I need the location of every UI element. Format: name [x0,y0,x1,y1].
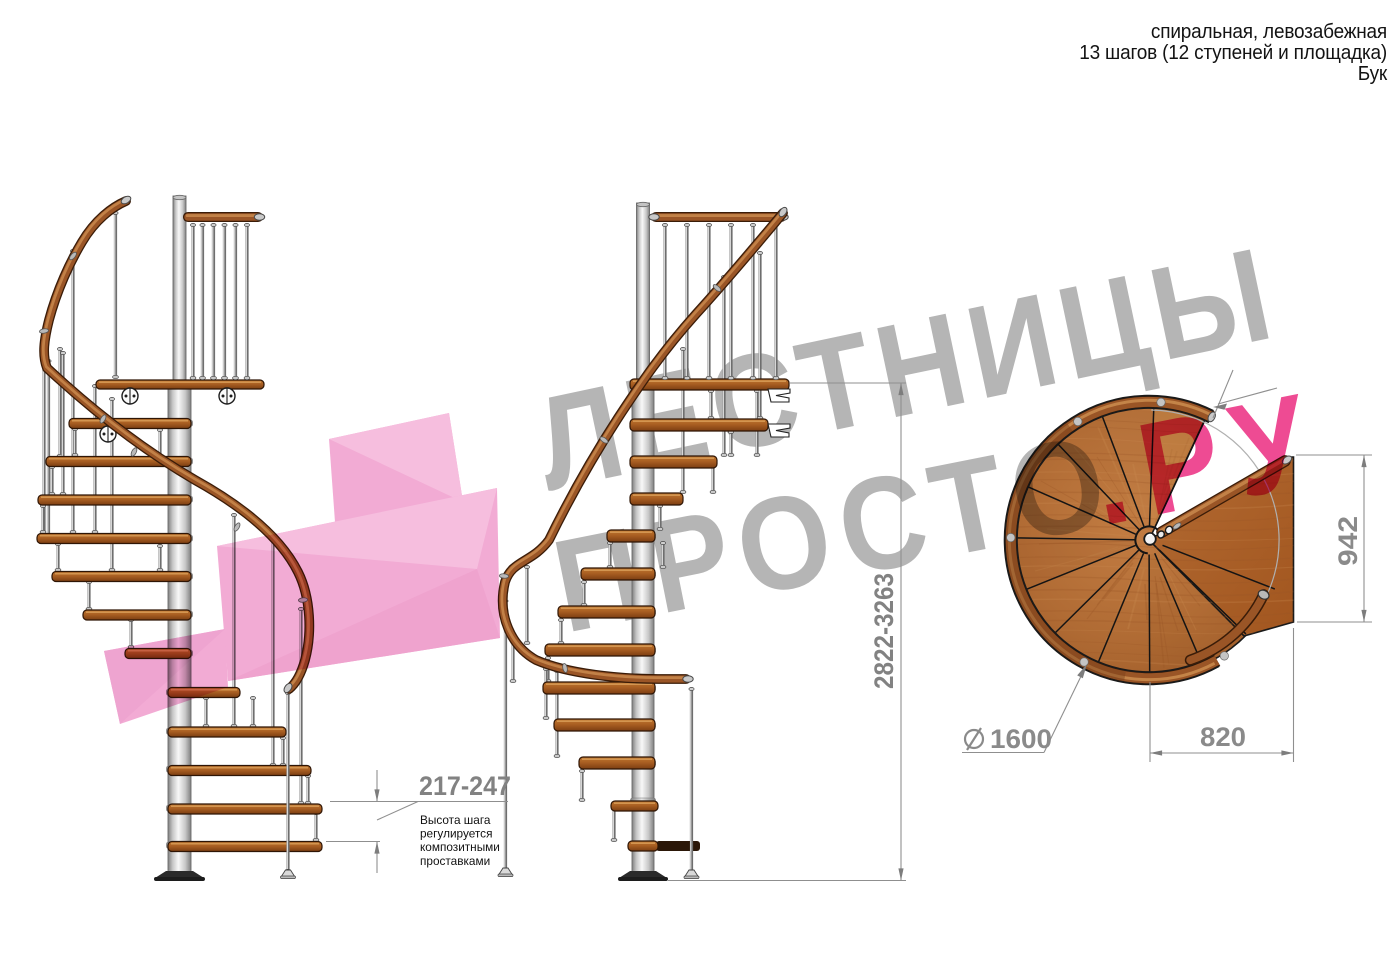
svg-text:1600: 1600 [990,724,1052,754]
svg-text:942: 942 [1333,516,1363,566]
svg-text:820: 820 [1200,722,1246,752]
svg-text:217-247: 217-247 [419,771,511,801]
svg-text:Высота шага: Высота шага [420,813,491,827]
svg-text:композитными: композитными [420,840,500,854]
svg-text:2822-3263: 2822-3263 [869,573,899,689]
svg-text:регулируется: регулируется [420,827,492,841]
svg-text:проставками: проставками [420,854,490,868]
